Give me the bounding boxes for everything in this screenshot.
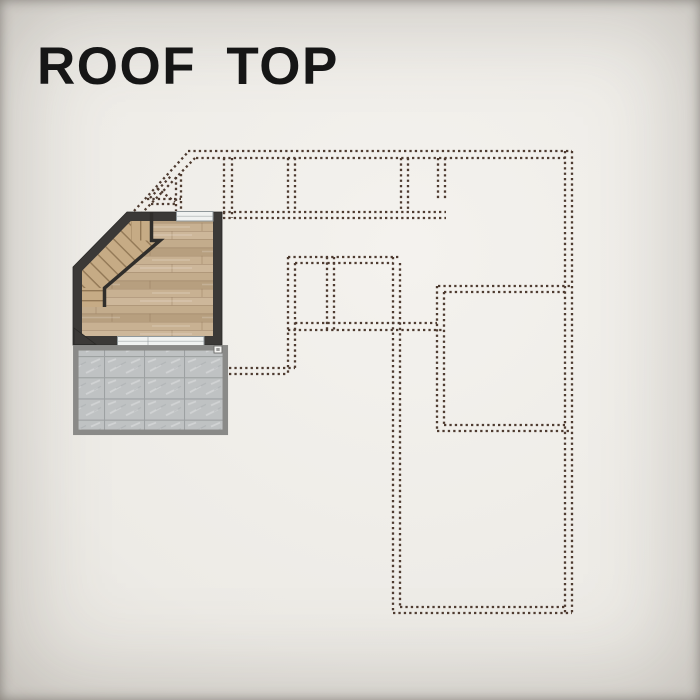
terrace-surface: [76, 348, 226, 433]
roof-terrace: [76, 346, 226, 432]
terrace-marker: [214, 346, 222, 353]
floorplan-drawing: [0, 0, 700, 700]
window-top: [177, 212, 214, 222]
dashed-wall-line: [141, 158, 195, 214]
stair-room: [73, 212, 222, 347]
staircase-bottom-run: [82, 288, 105, 307]
rooftop-floorplan-page: ROOF TOP: [0, 0, 700, 700]
staircase-top-run: [131, 221, 152, 241]
window-bottom: [118, 337, 205, 347]
